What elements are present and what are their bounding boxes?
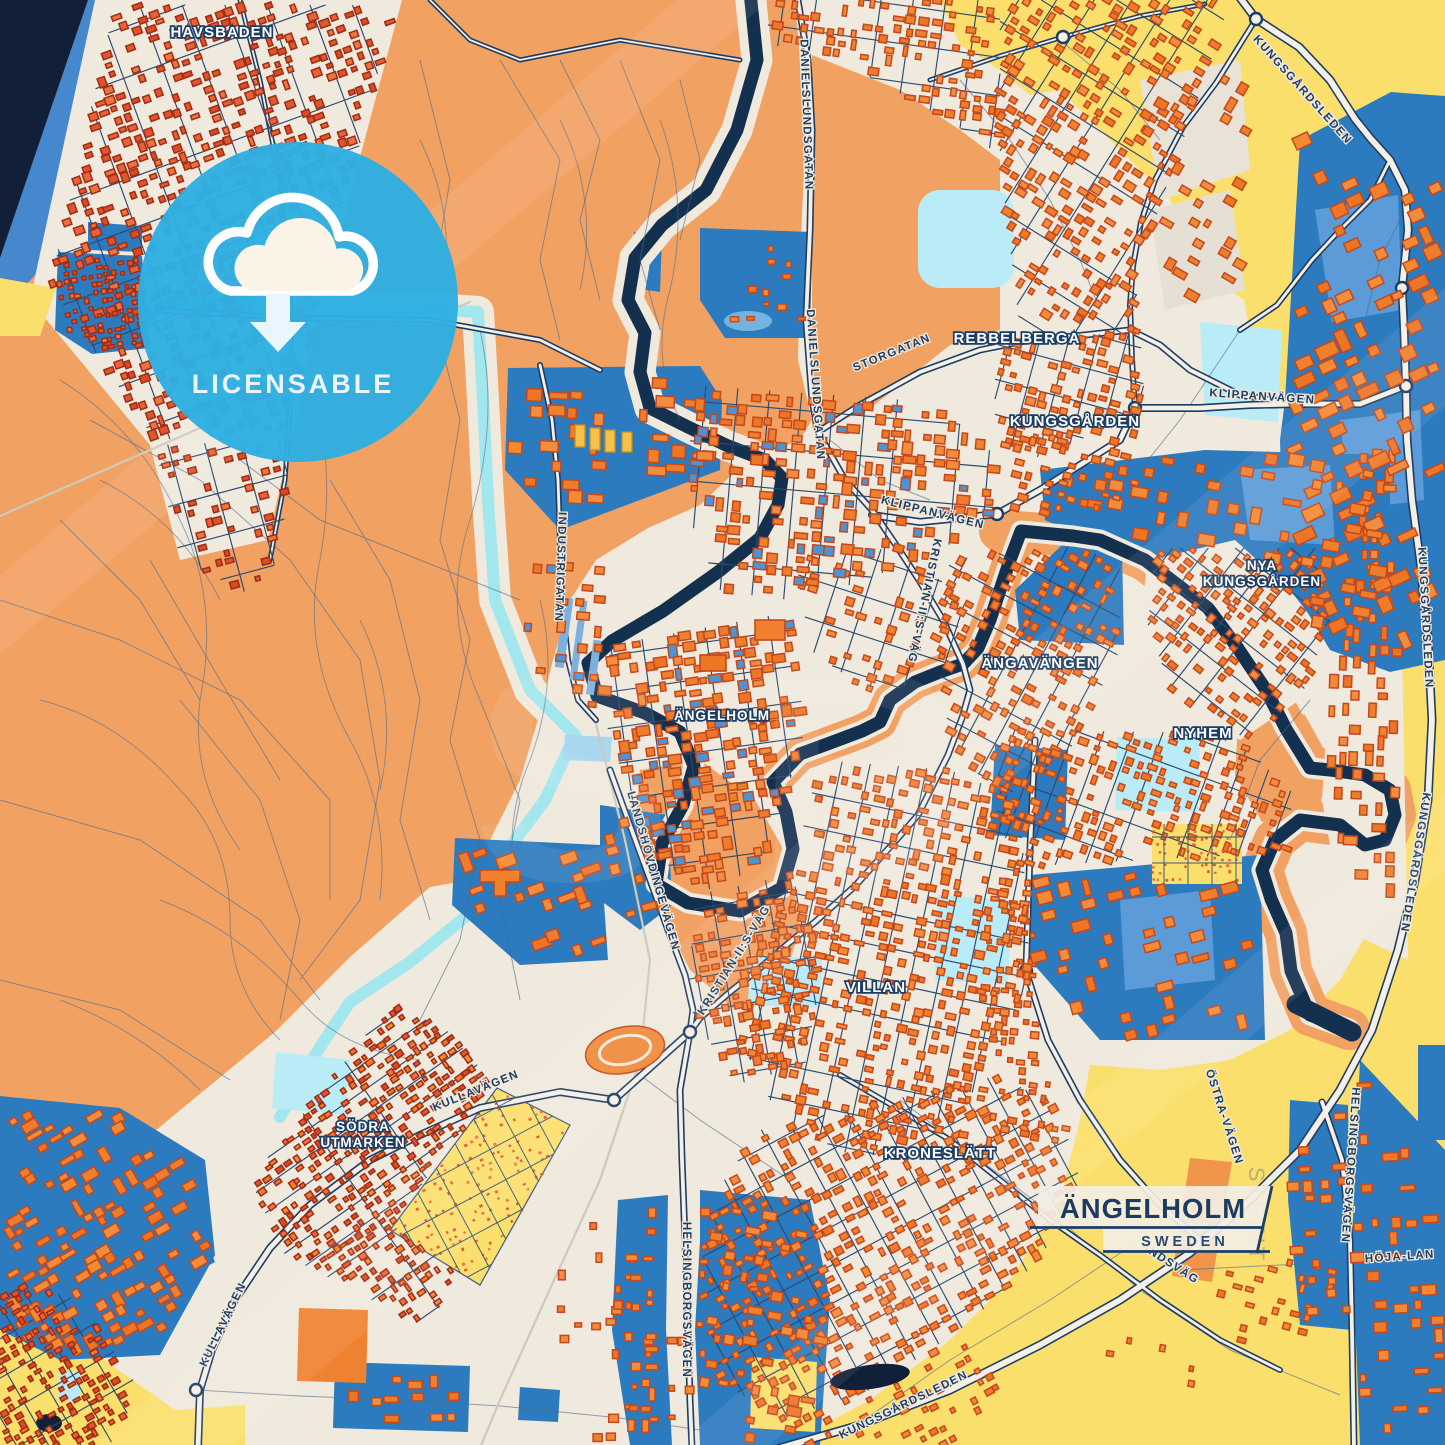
svg-text:SWEDEN: SWEDEN [1141,1234,1229,1250]
svg-text:REBBELBERGA: REBBELBERGA [954,330,1081,347]
svg-text:HAVSBADEN: HAVSBADEN [171,24,274,41]
svg-text:LICENSABLE: LICENSABLE [192,369,395,399]
svg-text:KRONESLÄTT: KRONESLÄTT [884,1145,997,1162]
svg-text:ÄNGELHOLM: ÄNGELHOLM [1060,1193,1246,1224]
svg-text:UTMARKEN: UTMARKEN [320,1135,405,1150]
svg-text:SÖDRA: SÖDRA [336,1119,390,1134]
svg-text:NYHEM: NYHEM [1173,725,1232,742]
svg-text:HELSINGBORGSVÄGEN: HELSINGBORGSVÄGEN [680,1222,693,1378]
svg-text:S B: S B [472,608,972,944]
svg-text:KUNGSGÅRDEN: KUNGSGÅRDEN [1010,413,1140,430]
svg-text:VILLAN: VILLAN [846,979,906,996]
